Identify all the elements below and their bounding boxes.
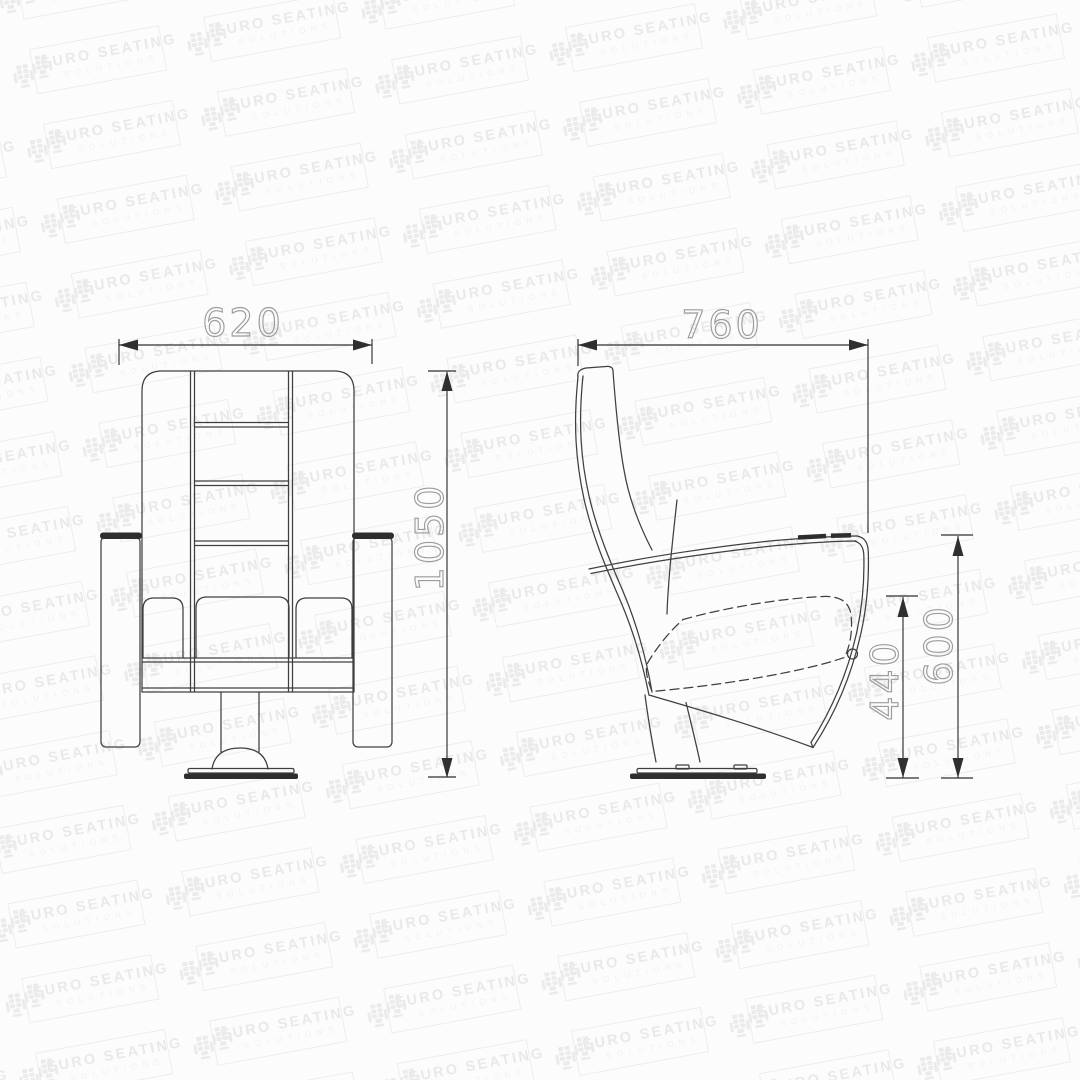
dim-seat-height: 440 — [863, 596, 919, 778]
front-view — [100, 371, 394, 779]
technical-drawing-page: EURO SEATINGSOLUTIONSEURO SEATINGSOLUTIO… — [0, 0, 1080, 1080]
dim-seat-height-label: 440 — [863, 639, 907, 721]
front-right-armrest-cap — [352, 533, 394, 540]
front-base-plate — [184, 774, 298, 780]
front-armrests — [100, 533, 394, 748]
side-pedestal — [630, 695, 766, 779]
side-armrest-pad — [798, 536, 826, 538]
front-right-armrest — [353, 537, 392, 747]
side-armrest — [589, 535, 857, 573]
front-center-column — [191, 372, 293, 693]
dim-armrest-height-label: 600 — [917, 604, 961, 686]
front-backrest-outline — [142, 371, 354, 692]
front-left-armrest-cap — [100, 533, 142, 540]
dim-armrest-height: 600 — [917, 535, 973, 778]
dim-overall-height-label: 1050 — [408, 483, 452, 592]
dimensions: 620 1050 760 — [119, 301, 973, 778]
front-pedestal — [184, 692, 298, 779]
dim-overall-depth-label: 760 — [681, 303, 763, 347]
dim-overall-height: 1050 — [408, 371, 456, 778]
seat-drawing-svg: 620 1050 760 — [0, 0, 1080, 1080]
side-base-plate — [630, 774, 766, 780]
side-view — [576, 366, 869, 779]
front-seat-cushion — [142, 597, 354, 688]
side-backrest — [576, 366, 677, 695]
dim-overall-width-label: 620 — [202, 301, 284, 345]
side-folded-seat-dashed — [646, 596, 851, 691]
side-panel — [649, 536, 868, 748]
front-backrest-rungs — [195, 423, 289, 546]
front-left-armrest — [101, 537, 140, 747]
dim-overall-width: 620 — [119, 301, 372, 365]
dim-overall-depth: 760 — [578, 303, 868, 533]
